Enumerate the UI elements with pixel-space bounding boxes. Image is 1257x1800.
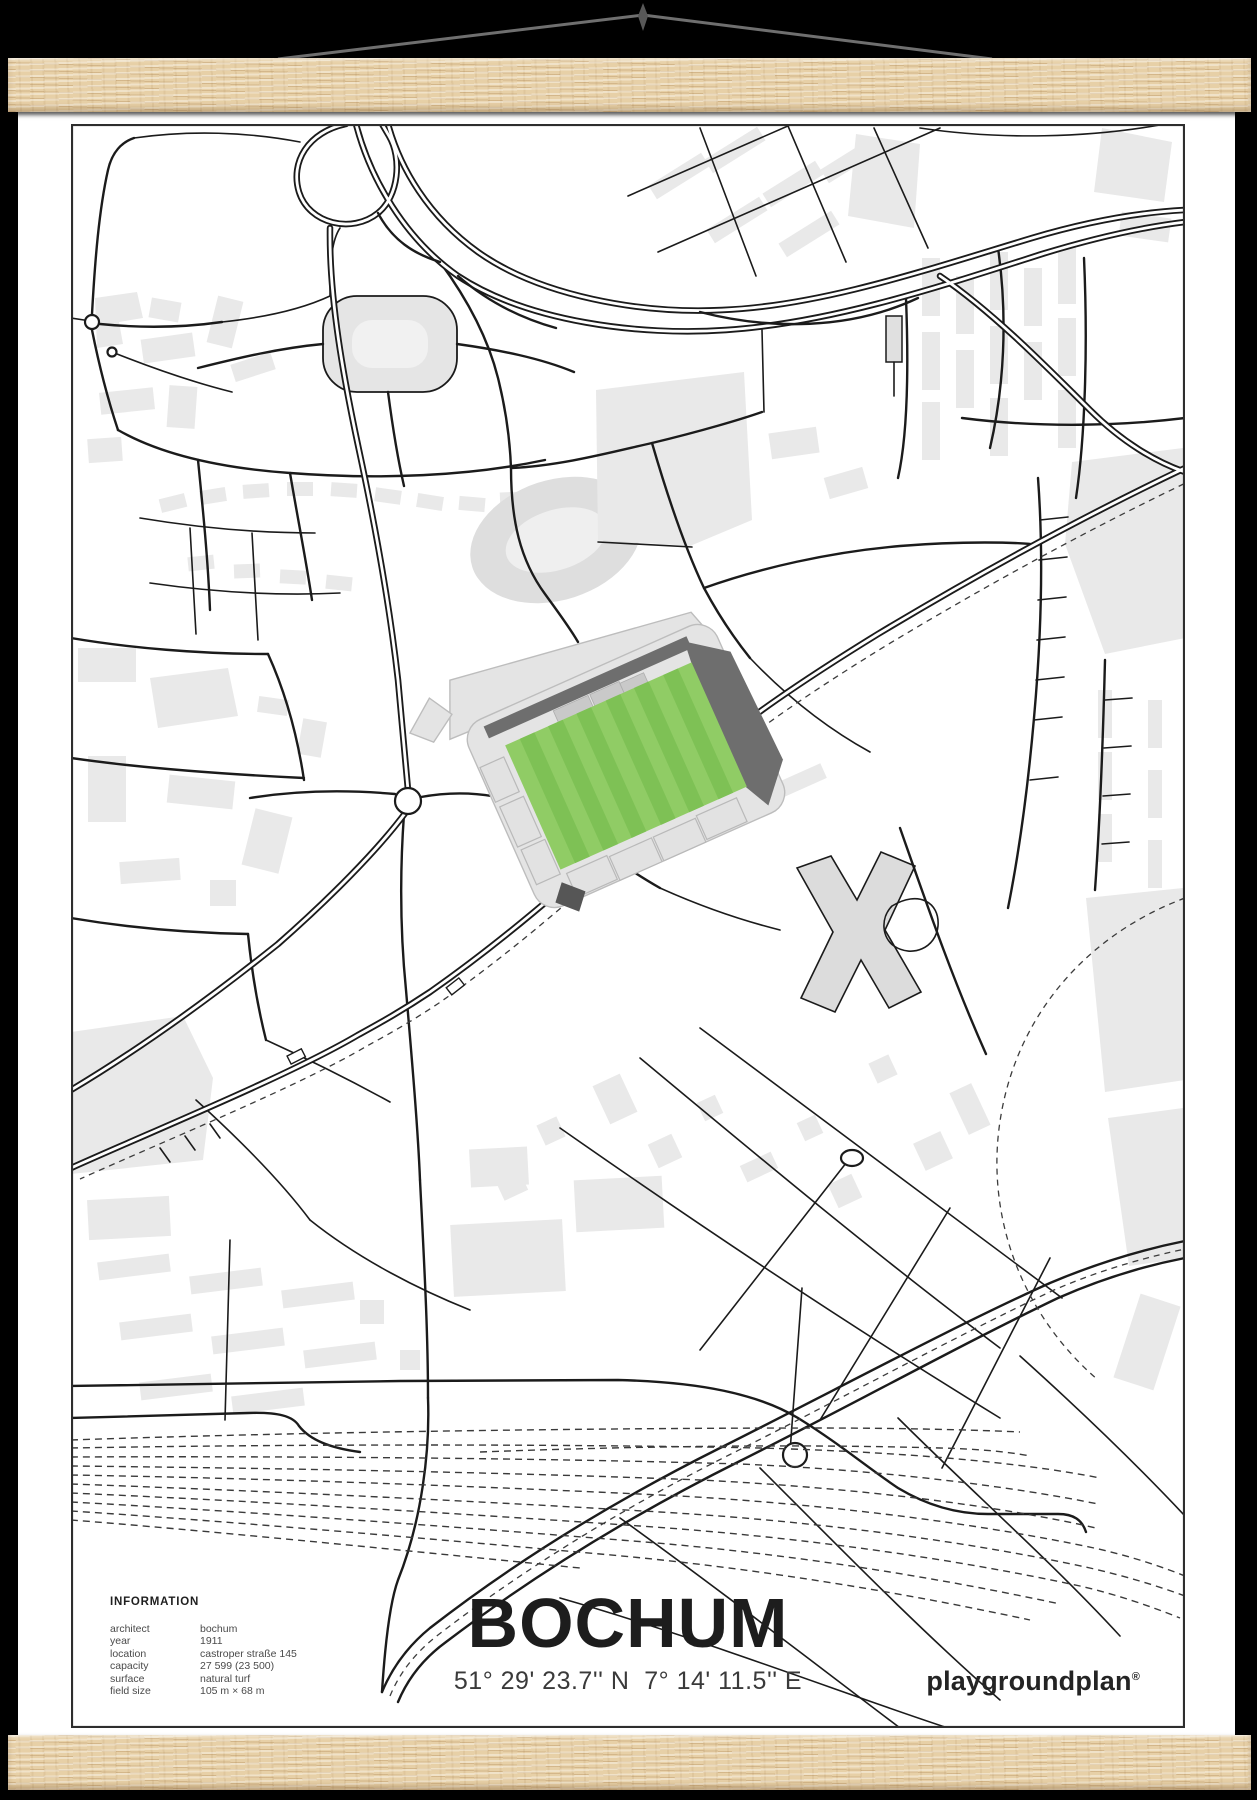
brand-logo: playgroundplan® [926, 1666, 1140, 1697]
wall-background: INFORMATION architect bochum year 1911 l… [0, 0, 1257, 1800]
tower-building [886, 316, 902, 362]
poster-title: BOCHUM [71, 1588, 1185, 1658]
stadium [397, 570, 806, 945]
bottom-wooden-rail [8, 1735, 1251, 1790]
city-map [71, 124, 1185, 1728]
star-building-complex [797, 852, 921, 1012]
string-pin [638, 3, 648, 31]
roundabout [395, 788, 421, 814]
top-wooden-rail [8, 58, 1251, 112]
registered-mark: ® [1132, 1671, 1140, 1683]
